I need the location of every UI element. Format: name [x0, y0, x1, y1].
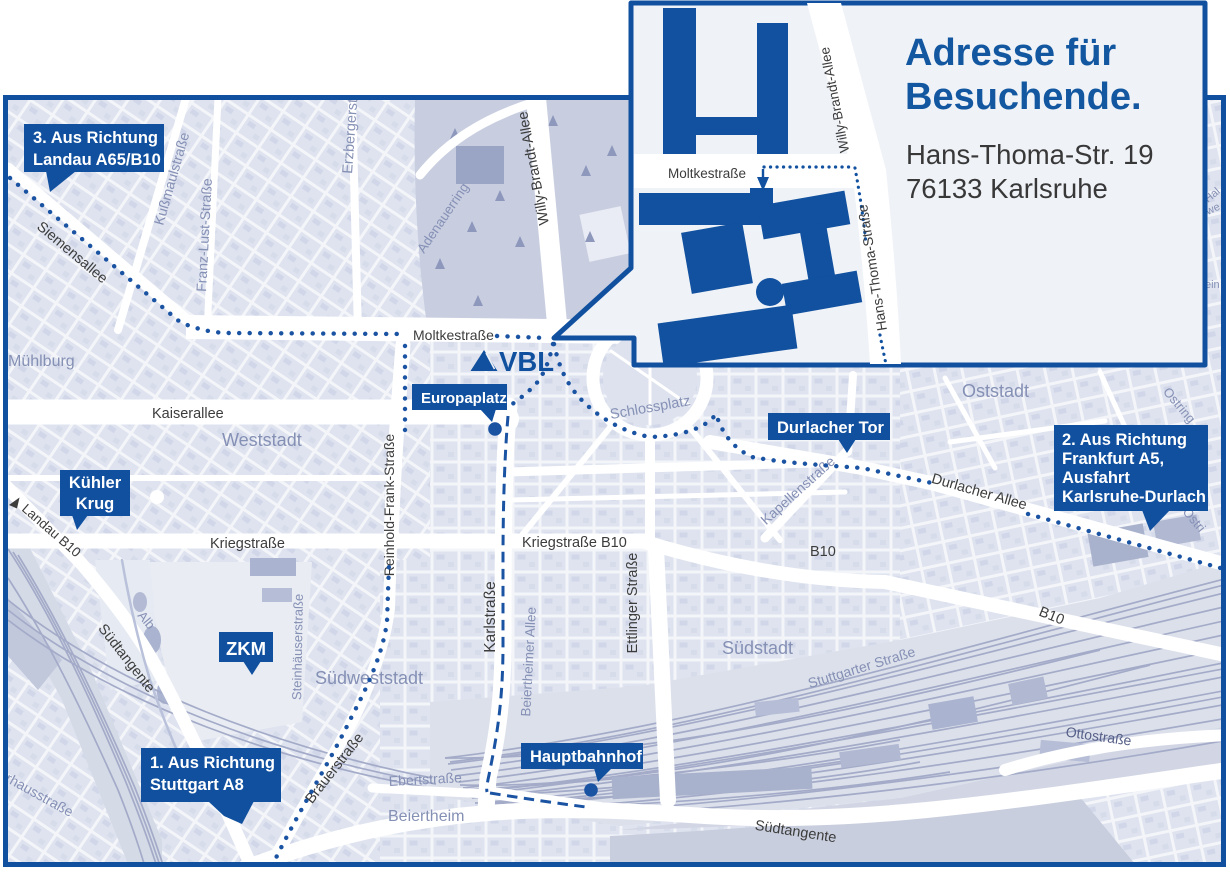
svg-text:Frankfurt A5,: Frankfurt A5, [1062, 450, 1164, 468]
svg-text:VBL: VBL [499, 346, 554, 377]
svg-text:Adresse für: Adresse für [905, 32, 1116, 74]
svg-text:Mühlburg: Mühlburg [8, 353, 75, 370]
svg-text:Weststadt: Weststadt [222, 430, 302, 450]
svg-text:Hans-Thoma-Str. 19: Hans-Thoma-Str. 19 [906, 139, 1154, 170]
svg-text:Ettlinger Straße: Ettlinger Straße [625, 553, 641, 654]
svg-text:Karlstraße: Karlstraße [482, 581, 499, 653]
svg-text:Durlacher Tor: Durlacher Tor [777, 419, 885, 437]
svg-text:ZKM: ZKM [226, 638, 266, 659]
svg-text:Kühler: Kühler [69, 474, 122, 492]
svg-text:Landau A65/B10: Landau A65/B10 [33, 151, 161, 169]
svg-text:3. Aus Richtung: 3. Aus Richtung [33, 129, 158, 147]
svg-text:Beiertheim: Beiertheim [388, 808, 464, 825]
svg-text:B10: B10 [810, 544, 836, 560]
svg-text:Oststadt: Oststadt [962, 381, 1029, 401]
svg-text:2. Aus Richtung: 2. Aus Richtung [1062, 431, 1187, 449]
svg-text:Europaplatz: Europaplatz [421, 390, 507, 407]
svg-text:Kriegstraße: Kriegstraße [210, 536, 285, 552]
svg-text:Stuttgart A8: Stuttgart A8 [150, 776, 244, 794]
svg-text:Karlsruhe-Durlach: Karlsruhe-Durlach [1062, 488, 1206, 506]
svg-text:Moltkestraße: Moltkestraße [668, 166, 746, 181]
svg-text:76133 Karlsruhe: 76133 Karlsruhe [906, 173, 1108, 204]
svg-text:Südstadt: Südstadt [722, 638, 793, 658]
svg-text:Krug: Krug [76, 495, 115, 513]
svg-text:Hauptbahnhof: Hauptbahnhof [530, 748, 642, 766]
svg-text:Kriegstraße B10: Kriegstraße B10 [522, 535, 627, 551]
svg-text:Ausfahrt: Ausfahrt [1062, 469, 1130, 487]
svg-text:Steinhäuserstraße: Steinhäuserstraße [289, 594, 306, 700]
svg-text:1. Aus Richtung: 1. Aus Richtung [150, 754, 275, 772]
svg-text:Kaiserallee: Kaiserallee [152, 406, 224, 422]
svg-text:Moltkestraße: Moltkestraße [413, 327, 494, 343]
svg-text:Besuchende.: Besuchende. [905, 76, 1142, 118]
svg-text:Reinhold-Frank-Straße: Reinhold-Frank-Straße [381, 434, 397, 577]
